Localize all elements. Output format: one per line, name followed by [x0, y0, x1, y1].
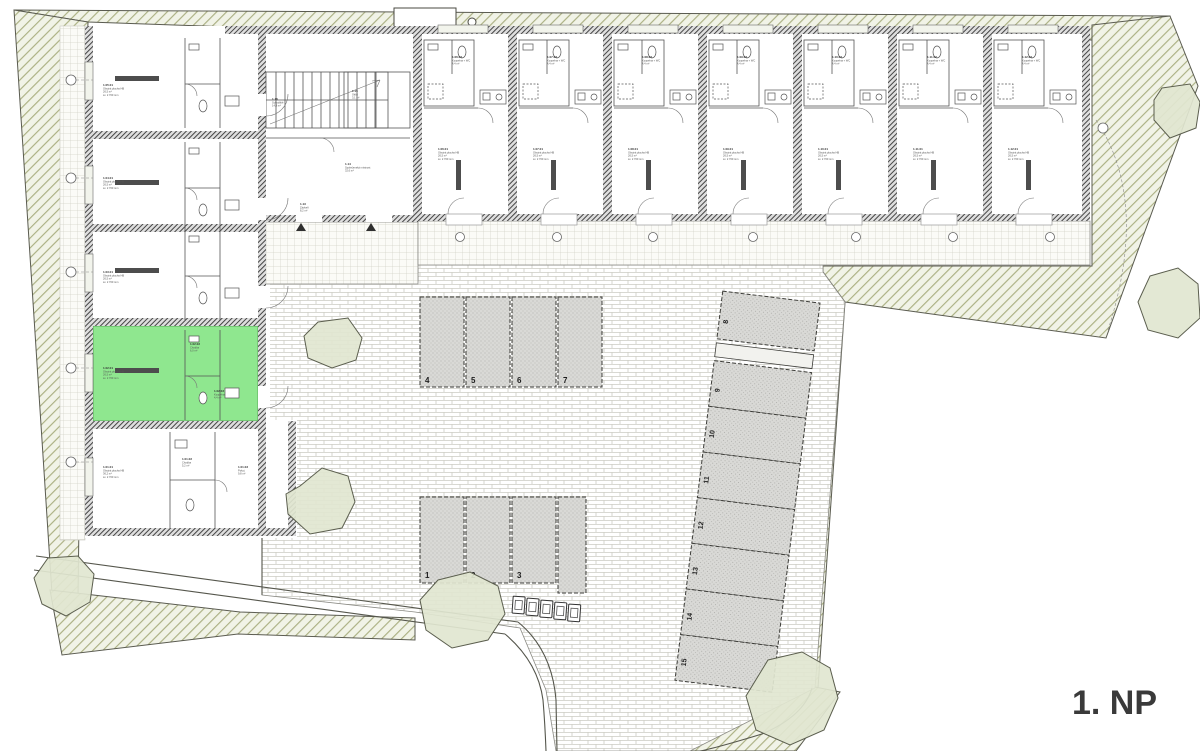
- parking-stall[interactable]: 3: [512, 497, 556, 583]
- svg-text:1.06.02: 1.06.02: [452, 55, 462, 59]
- floor-title: 1. NP: [1072, 684, 1157, 722]
- svg-text:1.15: 1.15: [352, 89, 358, 93]
- svg-text:5: 5: [471, 376, 476, 385]
- svg-text:sv. 2 700 mm: sv. 2 700 mm: [1008, 157, 1023, 161]
- svg-text:1.04.01: 1.04.01: [103, 176, 113, 180]
- floor-plan-canvas: 4 5 6 7 1 2 3: [0, 0, 1200, 751]
- svg-text:1.07.02: 1.07.02: [547, 55, 557, 59]
- parking-row-bottom: 1 2 3: [420, 497, 556, 583]
- svg-text:1.05.01: 1.05.01: [103, 83, 113, 87]
- svg-text:1.10.02: 1.10.02: [832, 55, 842, 59]
- svg-text:1.08.01: 1.08.01: [628, 147, 638, 151]
- svg-text:1.11.02: 1.11.02: [927, 55, 937, 59]
- svg-text:4,4 m²: 4,4 m²: [452, 62, 459, 66]
- svg-text:3: 3: [517, 571, 522, 580]
- parking-stall[interactable]: 4: [420, 297, 464, 387]
- svg-text:5,2 m²: 5,2 m²: [182, 464, 189, 468]
- svg-text:4,4 m²: 4,4 m²: [737, 62, 744, 66]
- svg-text:4,4 m²: 4,4 m²: [214, 396, 221, 400]
- svg-text:1.16: 1.16: [272, 97, 278, 101]
- svg-text:13: 13: [692, 567, 700, 576]
- svg-text:14,8 m²: 14,8 m²: [272, 104, 281, 108]
- parking-stall[interactable]: 7: [558, 297, 602, 387]
- svg-text:sv. 2 700 mm: sv. 2 700 mm: [438, 157, 453, 161]
- parking-stall[interactable]: 2: [466, 497, 510, 583]
- svg-text:sv. 2 700 mm: sv. 2 700 mm: [103, 93, 118, 97]
- svg-text:6: 6: [517, 376, 522, 385]
- svg-text:sv. 2 700 mm: sv. 2 700 mm: [818, 157, 833, 161]
- svg-text:7: 7: [563, 376, 568, 385]
- svg-text:1.13: 1.13: [300, 202, 306, 206]
- svg-text:1.12.01: 1.12.01: [1008, 147, 1018, 151]
- svg-text:4,4 m²: 4,4 m²: [832, 62, 839, 66]
- svg-text:8,2 m²: 8,2 m²: [300, 209, 307, 213]
- svg-text:1.14: 1.14: [345, 162, 351, 166]
- svg-text:1.12.02: 1.12.02: [1022, 55, 1032, 59]
- svg-text:1.06.01: 1.06.01: [438, 147, 448, 151]
- svg-text:12: 12: [698, 521, 706, 530]
- svg-text:sv. 2 700 mm: sv. 2 700 mm: [103, 186, 118, 190]
- tree: [1138, 268, 1200, 338]
- svg-text:1.02.02: 1.02.02: [190, 342, 200, 346]
- svg-text:4,4 m²: 4,4 m²: [927, 62, 934, 66]
- svg-text:14: 14: [686, 612, 694, 621]
- svg-text:15: 15: [681, 658, 689, 667]
- parking-stall[interactable]: 5: [466, 297, 510, 387]
- svg-text:1: 1: [425, 571, 430, 580]
- svg-text:3,1 m²: 3,1 m²: [352, 96, 359, 100]
- svg-text:1.09.02: 1.09.02: [737, 55, 747, 59]
- svg-text:sv. 2 700 mm: sv. 2 700 mm: [103, 280, 118, 284]
- svg-text:sv. 2 700 mm: sv. 2 700 mm: [103, 376, 118, 380]
- svg-text:1.01.02: 1.01.02: [182, 457, 192, 461]
- svg-text:1.08.02: 1.08.02: [642, 55, 652, 59]
- svg-text:1.02.03: 1.02.03: [214, 389, 224, 393]
- svg-text:sv. 2 700 mm: sv. 2 700 mm: [628, 157, 643, 161]
- core-terrace: [262, 222, 418, 284]
- svg-text:4: 4: [425, 376, 430, 385]
- svg-text:4,4 m²: 4,4 m²: [1022, 62, 1029, 66]
- svg-text:sv. 2 700 mm: sv. 2 700 mm: [913, 157, 928, 161]
- svg-text:sv. 2 700 mm: sv. 2 700 mm: [723, 157, 738, 161]
- svg-text:1.01.03: 1.01.03: [238, 465, 248, 469]
- svg-text:1.03.01: 1.03.01: [103, 270, 113, 274]
- svg-text:10: 10: [709, 430, 717, 439]
- svg-text:1.07.01: 1.07.01: [533, 147, 543, 151]
- parking-stall[interactable]: 6: [512, 297, 556, 387]
- svg-text:1.01.01: 1.01.01: [103, 465, 113, 469]
- parking-stall[interactable]: 1: [420, 497, 464, 583]
- svg-text:6,0 m²: 6,0 m²: [190, 349, 197, 353]
- svg-text:32,6 m²: 32,6 m²: [345, 169, 354, 173]
- svg-text:1.11.01: 1.11.01: [913, 147, 923, 151]
- svg-text:sv. 2 700 mm: sv. 2 700 mm: [533, 157, 548, 161]
- svg-text:11: 11: [703, 476, 711, 484]
- south-terrace: [418, 221, 1090, 265]
- highlighted-unit[interactable]: [93, 326, 258, 421]
- svg-text:1.10.01: 1.10.01: [818, 147, 828, 151]
- svg-text:sv. 2 700 mm: sv. 2 700 mm: [103, 475, 118, 479]
- svg-text:9,8 m²: 9,8 m²: [238, 472, 245, 476]
- svg-text:4,4 m²: 4,4 m²: [547, 62, 554, 66]
- parking-stall-extension: [558, 497, 586, 593]
- top-wing-bg: [230, 26, 1090, 226]
- floor-plan-page: 4 5 6 7 1 2 3: [0, 0, 1200, 751]
- svg-text:1.02.01: 1.02.01: [103, 366, 113, 370]
- svg-text:4,4 m²: 4,4 m²: [642, 62, 649, 66]
- svg-text:1.09.01: 1.09.01: [723, 147, 733, 151]
